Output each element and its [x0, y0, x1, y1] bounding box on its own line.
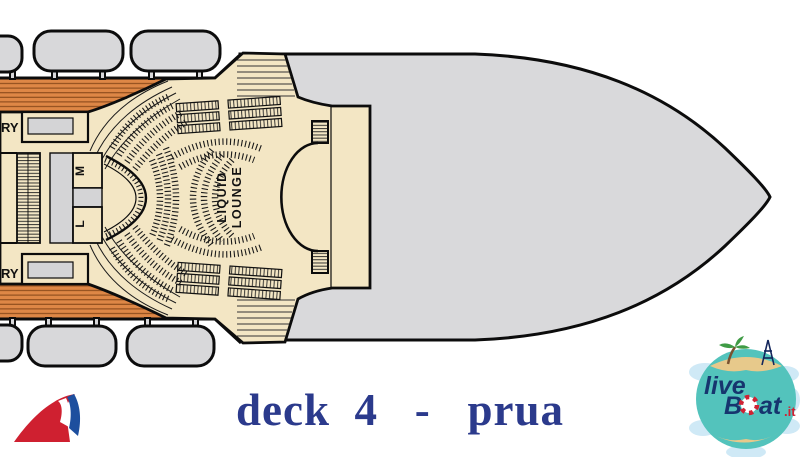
deck-title: deck 4 - prua — [0, 387, 800, 434]
service-stub — [73, 188, 102, 207]
label-room-m: M — [73, 166, 87, 176]
lifeboat — [34, 31, 123, 79]
lifeboat — [0, 318, 22, 361]
label-room-l: L — [73, 220, 87, 227]
lifeboat — [127, 318, 214, 366]
room-bottom — [22, 254, 88, 284]
lifeboat — [28, 318, 116, 366]
venue-name-line2: LOUNGE — [230, 166, 244, 228]
label-ry-bottom: RY — [1, 266, 19, 281]
stairs-block — [17, 153, 40, 243]
lifeboat — [0, 36, 22, 79]
stage-stairs — [312, 121, 328, 143]
lifeboats-top — [0, 31, 220, 79]
deck-plan-image: RY RY M L LIQUID LOUNGE live B — [0, 0, 800, 457]
lifeboats-bottom — [0, 318, 214, 366]
stage-stairs — [312, 251, 328, 273]
room-top — [22, 112, 88, 142]
label-ry-top: RY — [1, 120, 19, 135]
service-block — [50, 153, 73, 243]
venue-name-line1: LIQUID — [215, 171, 229, 222]
lifeboat — [131, 31, 220, 79]
